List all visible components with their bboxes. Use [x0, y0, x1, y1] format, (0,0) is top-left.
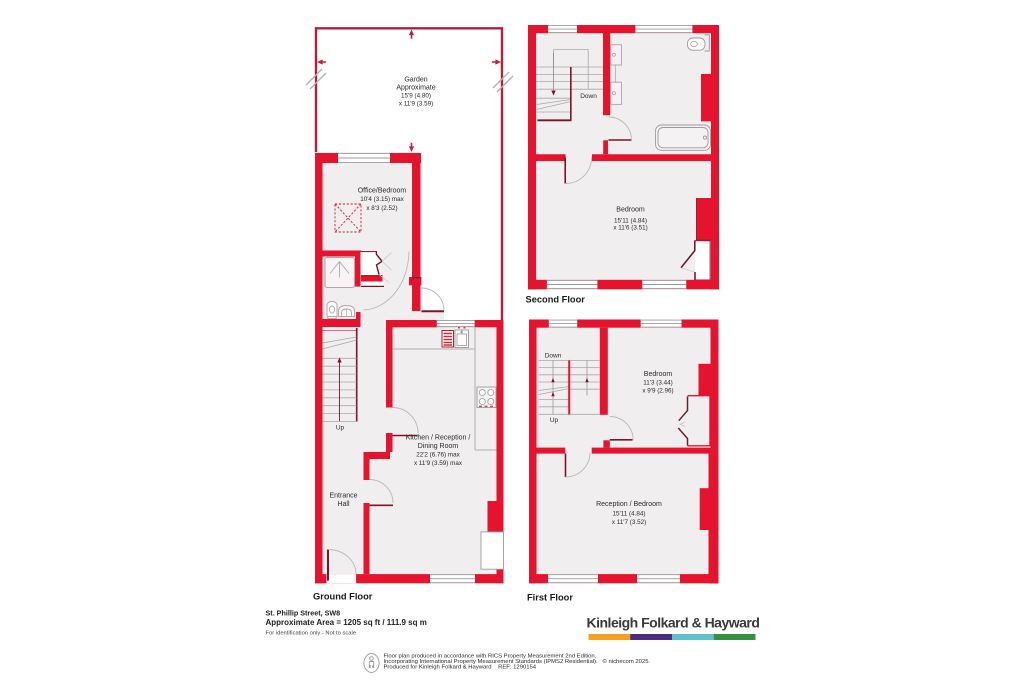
svg-text:For identification only - Not: For identification only - Not to scale [266, 631, 357, 637]
svg-text:15'11 (4.84): 15'11 (4.84) [613, 511, 646, 518]
svg-text:11'3 (3.44): 11'3 (3.44) [643, 380, 672, 387]
svg-text:x 9'9 (2.96): x 9'9 (2.96) [642, 388, 673, 395]
svg-text:x 11'9 (3.59): x 11'9 (3.59) [399, 101, 433, 108]
svg-text:x 11'7 (3.52): x 11'7 (3.52) [612, 519, 646, 526]
svg-text:Down: Down [545, 353, 562, 360]
svg-text:Office/Bedroom: Office/Bedroom [358, 188, 407, 195]
svg-text:Garden: Garden [404, 77, 427, 84]
svg-text:Bedroom: Bedroom [616, 207, 645, 214]
svg-text:Entrance: Entrance [329, 493, 357, 500]
svg-text:Approximate: Approximate [396, 85, 435, 92]
svg-text:22'2 (6.76) max: 22'2 (6.76) max [416, 452, 460, 459]
svg-text:Hall: Hall [337, 501, 350, 508]
svg-text:Up: Up [336, 425, 345, 432]
svg-text:x 11'9 (3.59) max: x 11'9 (3.59) max [414, 460, 463, 467]
svg-text:Produced for Kinleigh Folkard: Produced for Kinleigh Folkard & Hayward … [384, 665, 537, 671]
svg-text:First Floor: First Floor [527, 593, 573, 603]
svg-text:St. Phillip Street, SW8: St. Phillip Street, SW8 [266, 609, 341, 618]
svg-text:Reception / Bedroom: Reception / Bedroom [596, 501, 662, 508]
svg-text:Bedroom: Bedroom [644, 371, 673, 378]
svg-text:Second Floor: Second Floor [526, 295, 586, 305]
svg-text:Ground Floor: Ground Floor [313, 592, 373, 602]
svg-text:x 11'6 (3.51): x 11'6 (3.51) [613, 225, 647, 232]
svg-text:Down: Down [580, 93, 597, 100]
svg-text:Kinleigh Folkard & Hayward: Kinleigh Folkard & Hayward [587, 615, 760, 631]
svg-text:Up: Up [550, 417, 559, 424]
svg-text:15'9 (4.80): 15'9 (4.80) [401, 93, 431, 100]
svg-text:Kitchen / Reception /: Kitchen / Reception / [406, 435, 471, 442]
svg-text:x 8'3 (2.52): x 8'3 (2.52) [366, 205, 397, 212]
svg-text:Dining Room: Dining Room [418, 443, 459, 450]
svg-text:Approximate Area = 1205 sq ft: Approximate Area = 1205 sq ft / 111.9 sq… [266, 618, 427, 627]
svg-text:10'4 (3.15) max: 10'4 (3.15) max [360, 196, 404, 203]
svg-text:15'11 (4.84): 15'11 (4.84) [614, 218, 647, 225]
